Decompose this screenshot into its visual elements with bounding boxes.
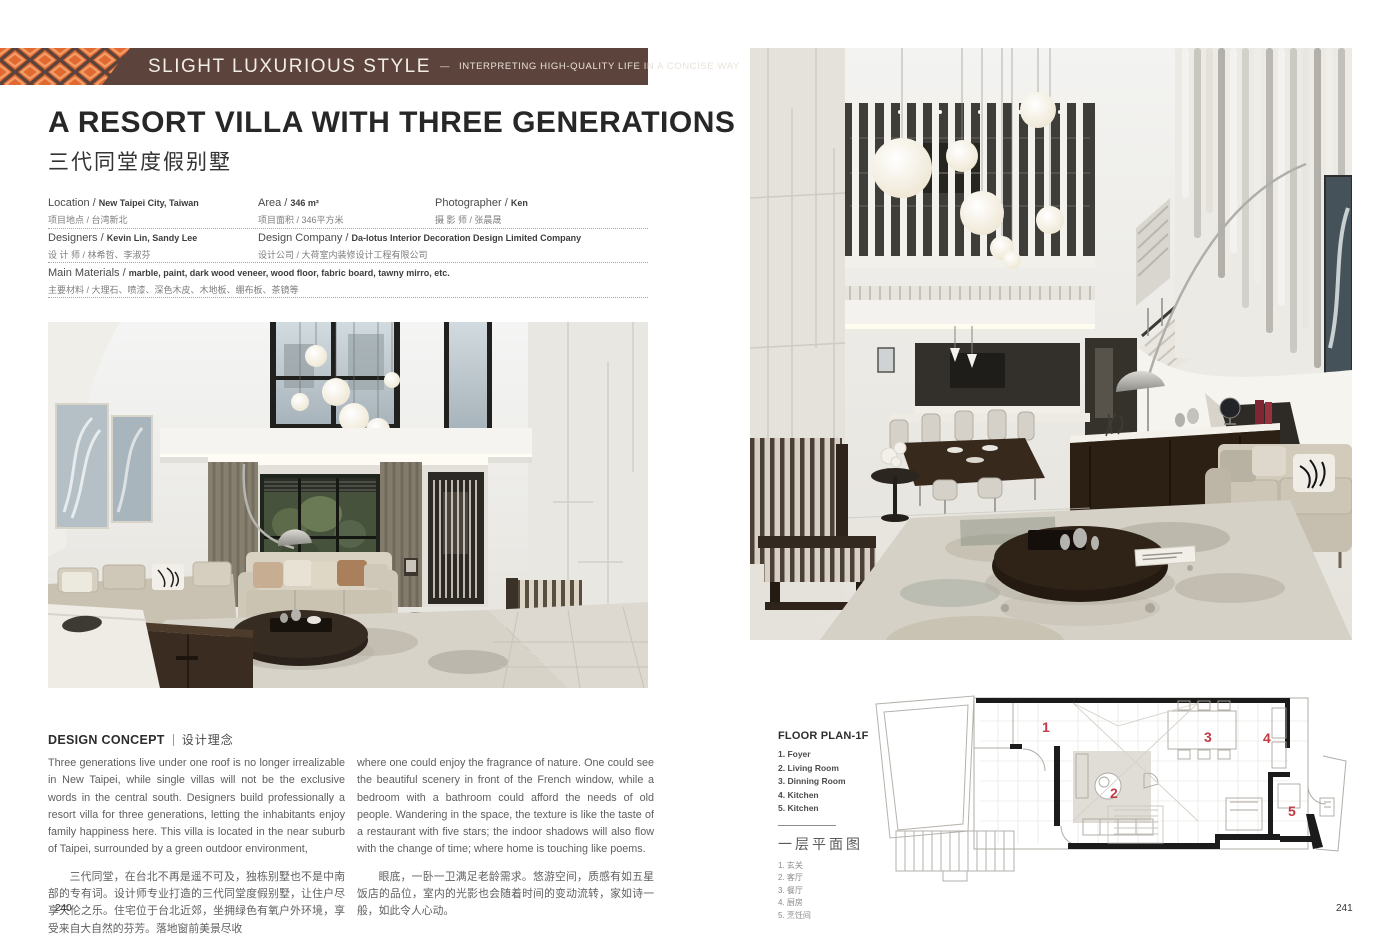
living-room-photo xyxy=(48,322,648,688)
floor-plan-drawing: 1 2 3 4 5 xyxy=(868,686,1360,886)
project-title-zh: 三代同堂度假别墅 xyxy=(48,146,232,176)
concept-heading-en: DESIGN CONCEPT xyxy=(48,733,165,747)
company-label: Design Company / xyxy=(258,232,352,244)
legend-item-zh: 3. 餐厅 xyxy=(778,885,888,898)
book-spread: SLIGHT LUXURIOUS STYLE — INTERPRETING HI… xyxy=(0,0,1400,951)
chapter-banner: SLIGHT LUXURIOUS STYLE — INTERPRETING HI… xyxy=(0,48,648,85)
concept-col2-en: where one could enjoy the fragrance of n… xyxy=(357,755,654,859)
abstract-artwork xyxy=(1325,176,1352,381)
wall-artworks xyxy=(56,404,152,528)
legend-item-zh: 4. 厨房 xyxy=(778,897,888,910)
banner-subtitle: INTERPRETING HIGH-QUALITY LIFE IN A CONC… xyxy=(459,61,740,72)
info-location: Location / New Taipei City, Taiwan 项目地点 … xyxy=(48,194,248,228)
company-zh: 设计公司 / 大荷室内装修设计工程有限公司 xyxy=(258,248,648,263)
diamond-pattern-icon xyxy=(0,48,130,85)
dotted-divider xyxy=(48,262,648,263)
concept-heading: DESIGN CONCEPT 设计理念 xyxy=(48,731,234,748)
room-marker-5: 5 xyxy=(1288,803,1296,819)
materials-label: Main Materials / xyxy=(48,267,129,279)
slat-doorway xyxy=(428,472,484,604)
location-label: Location / xyxy=(48,197,99,209)
designers-value: Kevin Lin, Sandy Lee xyxy=(107,233,198,243)
concept-col2-zh: 眼底，一卧一卫满足老龄需求。悠游空间，质感有如五星饭店的品位，室内的光影也会随着… xyxy=(357,869,654,921)
designers-label: Designers / xyxy=(48,232,107,244)
area-value: 346 m² xyxy=(290,198,319,208)
info-photographer: Photographer / Ken 摄 影 师 / 张晨晟 xyxy=(435,194,648,228)
company-value: Da-lotus Interior Decoration Design Limi… xyxy=(352,233,582,243)
concept-col1-zh: 三代同堂，在台北不再是遥不可及，独栋别墅也不是中南部的专有词。设计师专业打造的三… xyxy=(48,869,345,938)
designers-zh: 设 计 师 / 林希哲、李淑芬 xyxy=(48,248,248,263)
photographer-zh: 摄 影 师 / 张晨晟 xyxy=(435,213,648,228)
room-marker-4: 4 xyxy=(1263,730,1271,746)
project-title-en: A RESORT VILLA WITH THREE GENERATIONS xyxy=(48,106,735,140)
location-zh: 项目地点 / 台湾新北 xyxy=(48,213,248,228)
double-height-space-photo xyxy=(750,48,1352,640)
room-marker-2: 2 xyxy=(1110,785,1118,801)
room-marker-1: 1 xyxy=(1042,719,1050,735)
info-designers: Designers / Kevin Lin, Sandy Lee 设 计 师 /… xyxy=(48,229,248,263)
furniture-symbols xyxy=(1073,701,1334,843)
info-company: Design Company / Da-lotus Interior Decor… xyxy=(258,229,648,263)
terrace-outline xyxy=(876,696,1014,881)
banner-text: SLIGHT LUXURIOUS STYLE — INTERPRETING HI… xyxy=(148,48,740,85)
photographer-value: Ken xyxy=(511,198,528,208)
banner-title: SLIGHT LUXURIOUS STYLE xyxy=(148,56,431,78)
concept-column-1: Three generations live under one roof is… xyxy=(48,755,345,948)
diamond-pattern-svg xyxy=(0,48,130,85)
dotted-divider xyxy=(48,297,648,298)
area-zh: 项目面积 / 346平方米 xyxy=(258,213,428,228)
heading-divider xyxy=(173,734,174,746)
page-number-left: 240 xyxy=(55,903,72,914)
photographer-label: Photographer / xyxy=(435,197,511,209)
info-area: Area / 346 m² 项目面积 / 346平方米 xyxy=(258,194,428,228)
legend-divider xyxy=(778,825,836,826)
info-materials: Main Materials / marble, paint, dark woo… xyxy=(48,264,648,298)
concept-col1-en: Three generations live under one roof is… xyxy=(48,755,345,859)
materials-value: marble, paint, dark wood veneer, wood fl… xyxy=(129,268,450,278)
banner-dash: — xyxy=(440,61,450,72)
area-label: Area / xyxy=(258,197,290,209)
concept-column-2: where one could enjoy the fragrance of n… xyxy=(357,755,654,931)
clerestory-windows xyxy=(270,322,492,434)
page-number-right: 241 xyxy=(1336,903,1353,914)
concept-heading-zh: 设计理念 xyxy=(182,731,234,748)
materials-zh: 主要材料 / 大理石、喷漆、深色木皮、木地板、绷布板、茶镜等 xyxy=(48,283,648,298)
room-marker-3: 3 xyxy=(1204,729,1212,745)
location-value: New Taipei City, Taiwan xyxy=(99,198,199,208)
white-console xyxy=(48,604,160,688)
legend-item-zh: 5. 烹饪间 xyxy=(778,910,888,923)
